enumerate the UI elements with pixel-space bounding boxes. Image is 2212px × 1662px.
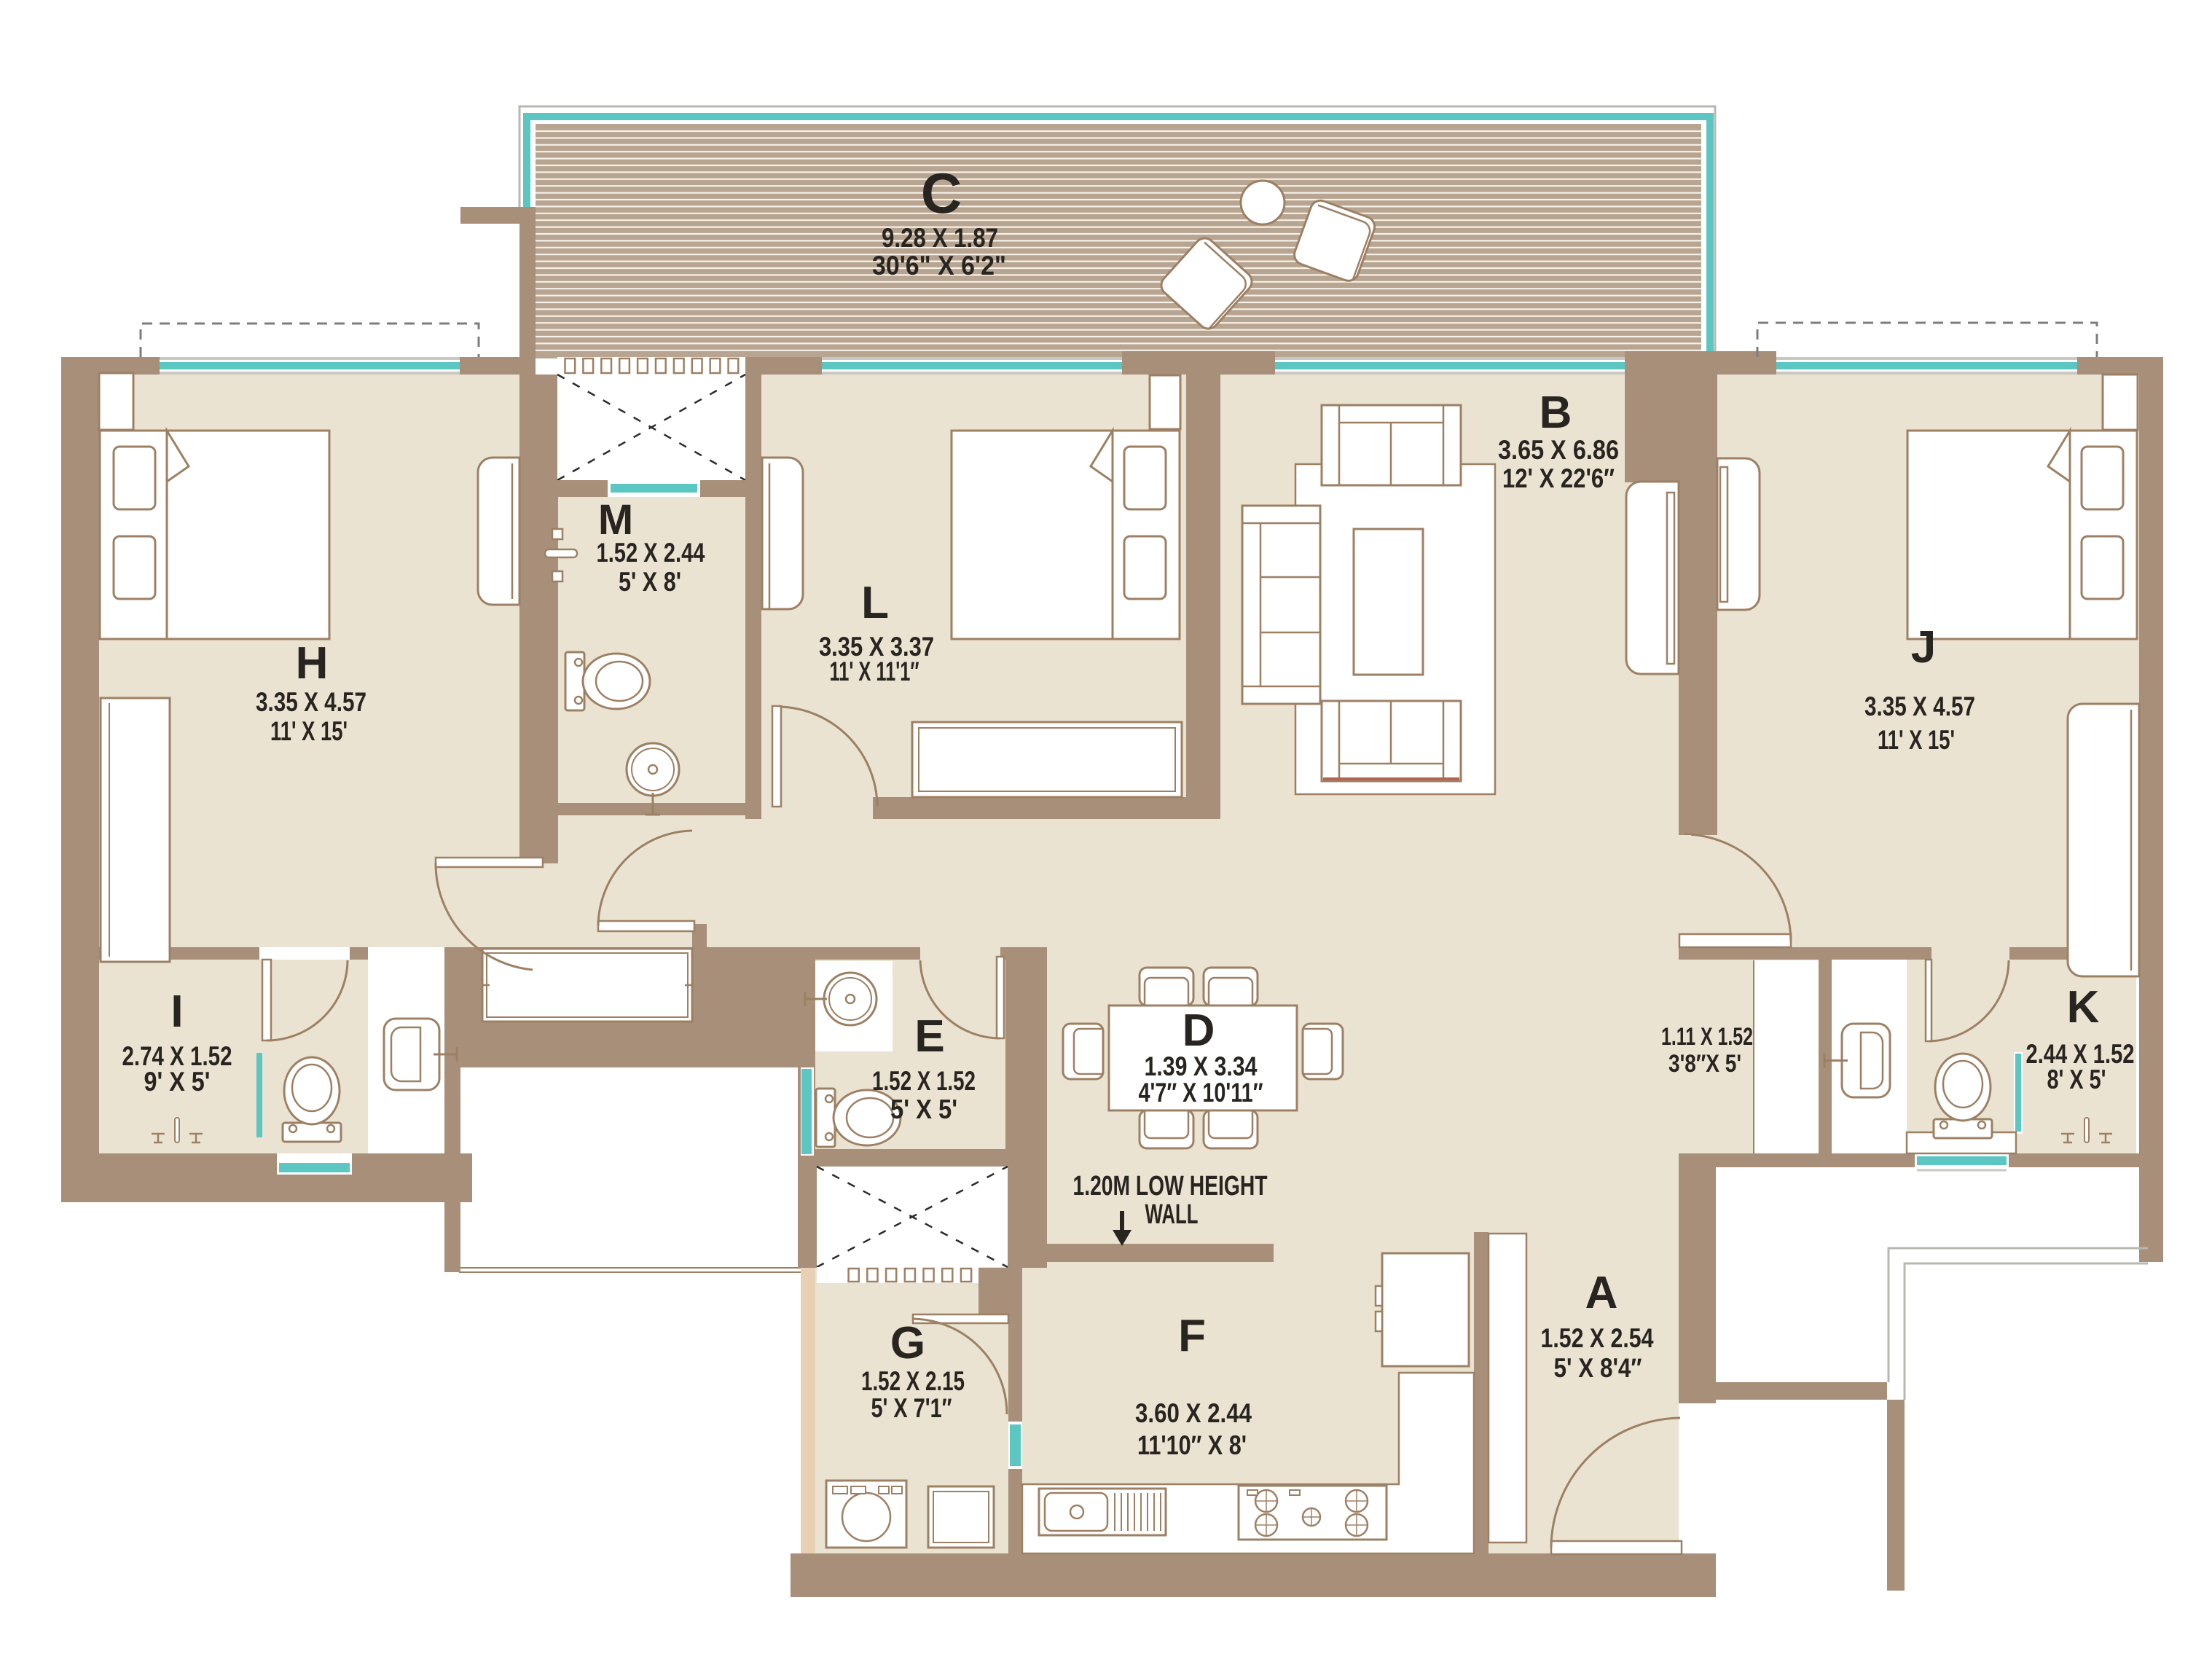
svg-text:A: A xyxy=(1585,1268,1618,1318)
svg-text:3.65 X 6.86: 3.65 X 6.86 xyxy=(1498,435,1619,465)
svg-text:C: C xyxy=(921,161,962,225)
svg-text:3.35 X 4.57: 3.35 X 4.57 xyxy=(256,687,366,717)
svg-text:1.52 X 1.52: 1.52 X 1.52 xyxy=(872,1066,976,1096)
svg-text:9.28 X 1.87: 9.28 X 1.87 xyxy=(882,223,998,253)
svg-text:11' X 11'1″: 11' X 11'1″ xyxy=(830,656,919,686)
svg-text:9' X 5': 9' X 5' xyxy=(144,1067,211,1097)
svg-text:B: B xyxy=(1540,388,1572,438)
svg-text:8' X 5': 8' X 5' xyxy=(2047,1065,2106,1094)
svg-text:1.20M LOW HEIGHT: 1.20M LOW HEIGHT xyxy=(1073,1171,1268,1202)
svg-text:H: H xyxy=(296,638,329,689)
svg-text:5' X 8': 5' X 8' xyxy=(619,567,681,597)
svg-text:5' X 8'4″: 5' X 8'4″ xyxy=(1554,1353,1642,1383)
svg-text:12' X 22'6″: 12' X 22'6″ xyxy=(1502,463,1615,493)
svg-text:5' X 5': 5' X 5' xyxy=(890,1094,957,1124)
svg-text:3.60 X 2.44: 3.60 X 2.44 xyxy=(1135,1398,1252,1428)
svg-text:I: I xyxy=(170,987,183,1037)
svg-text:1.11 X 1.52: 1.11 X 1.52 xyxy=(1661,1023,1753,1051)
svg-text:3'8″X 5': 3'8″X 5' xyxy=(1668,1050,1741,1078)
svg-text:M: M xyxy=(598,496,633,544)
svg-text:E: E xyxy=(914,1011,944,1062)
svg-text:F: F xyxy=(1178,1311,1206,1361)
svg-text:1.52 X 2.54: 1.52 X 2.54 xyxy=(1541,1323,1654,1353)
svg-text:11'10″ X 8': 11'10″ X 8' xyxy=(1137,1430,1247,1460)
svg-text:G: G xyxy=(890,1318,925,1368)
svg-text:30'6" X 6'2": 30'6" X 6'2" xyxy=(872,251,1006,281)
svg-text:L: L xyxy=(861,578,889,628)
svg-text:J: J xyxy=(1911,622,1936,673)
svg-text:D: D xyxy=(1183,1006,1215,1056)
svg-text:WALL: WALL xyxy=(1145,1199,1199,1230)
svg-text:11' X 15': 11' X 15' xyxy=(1878,725,1955,755)
svg-text:11' X 15': 11' X 15' xyxy=(270,716,348,746)
svg-text:1.39 X 3.34: 1.39 X 3.34 xyxy=(1145,1051,1258,1081)
svg-text:K: K xyxy=(2067,982,2100,1032)
svg-text:5' X 7'1″: 5' X 7'1″ xyxy=(871,1393,952,1423)
svg-text:4'7″ X 10'11″: 4'7″ X 10'11″ xyxy=(1139,1078,1263,1108)
svg-text:1.52 X 2.15: 1.52 X 2.15 xyxy=(861,1366,965,1396)
svg-text:1.52 X 2.44: 1.52 X 2.44 xyxy=(597,538,705,568)
svg-text:3.35 X 4.57: 3.35 X 4.57 xyxy=(1864,691,1975,721)
